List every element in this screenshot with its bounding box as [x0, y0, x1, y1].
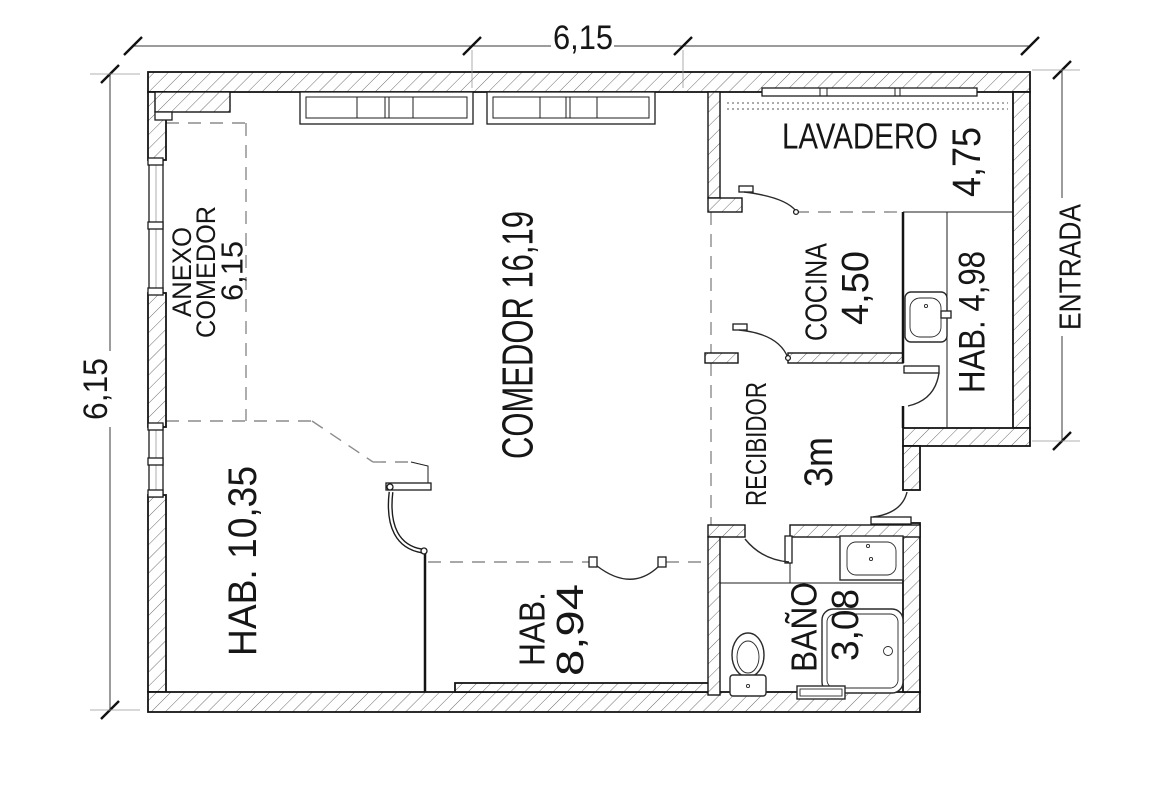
room-label-cocina: COCINA: [799, 243, 834, 341]
wall-bano-top-right: [790, 525, 920, 537]
door-bano: [745, 536, 792, 563]
door-entrance: [871, 492, 911, 524]
door-cocina: [733, 324, 790, 360]
wall-lavadero-left: [708, 92, 720, 198]
wall-bottom-step: [455, 683, 712, 692]
wall-left-pier-2: [148, 293, 166, 427]
window-comedor-2: [487, 92, 655, 124]
toilet: [730, 633, 766, 696]
room-area-recibidor: 3m: [797, 437, 841, 487]
pillar-top-left: [155, 92, 230, 112]
wall-right-upper: [1013, 92, 1030, 428]
pillar-step: [155, 112, 172, 120]
door-hab-894: [589, 557, 666, 579]
wall-entry-stub: [903, 446, 920, 490]
window-lavadero: [727, 88, 1008, 109]
wall-left-pier-3: [148, 495, 166, 692]
room-area-cocina: 4,50: [835, 251, 877, 325]
bathroom-sink: [840, 536, 903, 580]
room-area-hab-894: 8,94: [550, 584, 592, 676]
wall-cocina-stub: [705, 353, 738, 363]
window-left-2: [148, 423, 163, 497]
room-label-hab-894: HAB.: [512, 592, 553, 666]
dim-left-label: 6,15: [77, 358, 115, 420]
room-label-lavadero: LAVADERO: [782, 116, 938, 157]
wall-right-lower: [903, 523, 920, 692]
room-area-anexo: 6,15: [215, 241, 250, 301]
washer-vent: [797, 686, 845, 699]
room-label-recibidor: RECIBIDOR: [741, 382, 773, 506]
door-lavadero: [739, 186, 798, 214]
window-left-1: [148, 158, 163, 295]
room-area-bano: 3,08: [825, 589, 867, 661]
door-hab-1035-curved: [386, 483, 431, 554]
room-label-comedor: COMEDOR 16,19: [494, 211, 543, 459]
dim-top-label: 6,15: [553, 19, 613, 57]
entrance-label: ENTRADA: [1053, 204, 1088, 330]
wall-bano-top-left: [708, 525, 745, 537]
room-label-hab-498: HAB. 4,98: [952, 251, 993, 393]
window-comedor-1: [300, 92, 473, 124]
floor-plan-canvas: 6,15 6,15 ENTRADA LAVADERO 4,75 ANEXO CO…: [0, 0, 1168, 785]
floor-plan-page: 6,15 6,15 ENTRADA LAVADERO 4,75 ANEXO CO…: [0, 0, 1168, 785]
door-hab-498: [904, 366, 939, 406]
kitchen-sink: [905, 292, 951, 342]
wall-cocina-recibidor: [788, 353, 903, 363]
wall-bano-left: [708, 537, 720, 695]
room-area-lavadero: 4,75: [945, 127, 989, 197]
wall-lavadero-foot: [708, 198, 742, 212]
room-label-bano: BAÑO: [784, 582, 825, 672]
room-label-hab-1035: HAB. 10,35: [221, 466, 265, 656]
wall-entry-step: [903, 428, 1030, 446]
